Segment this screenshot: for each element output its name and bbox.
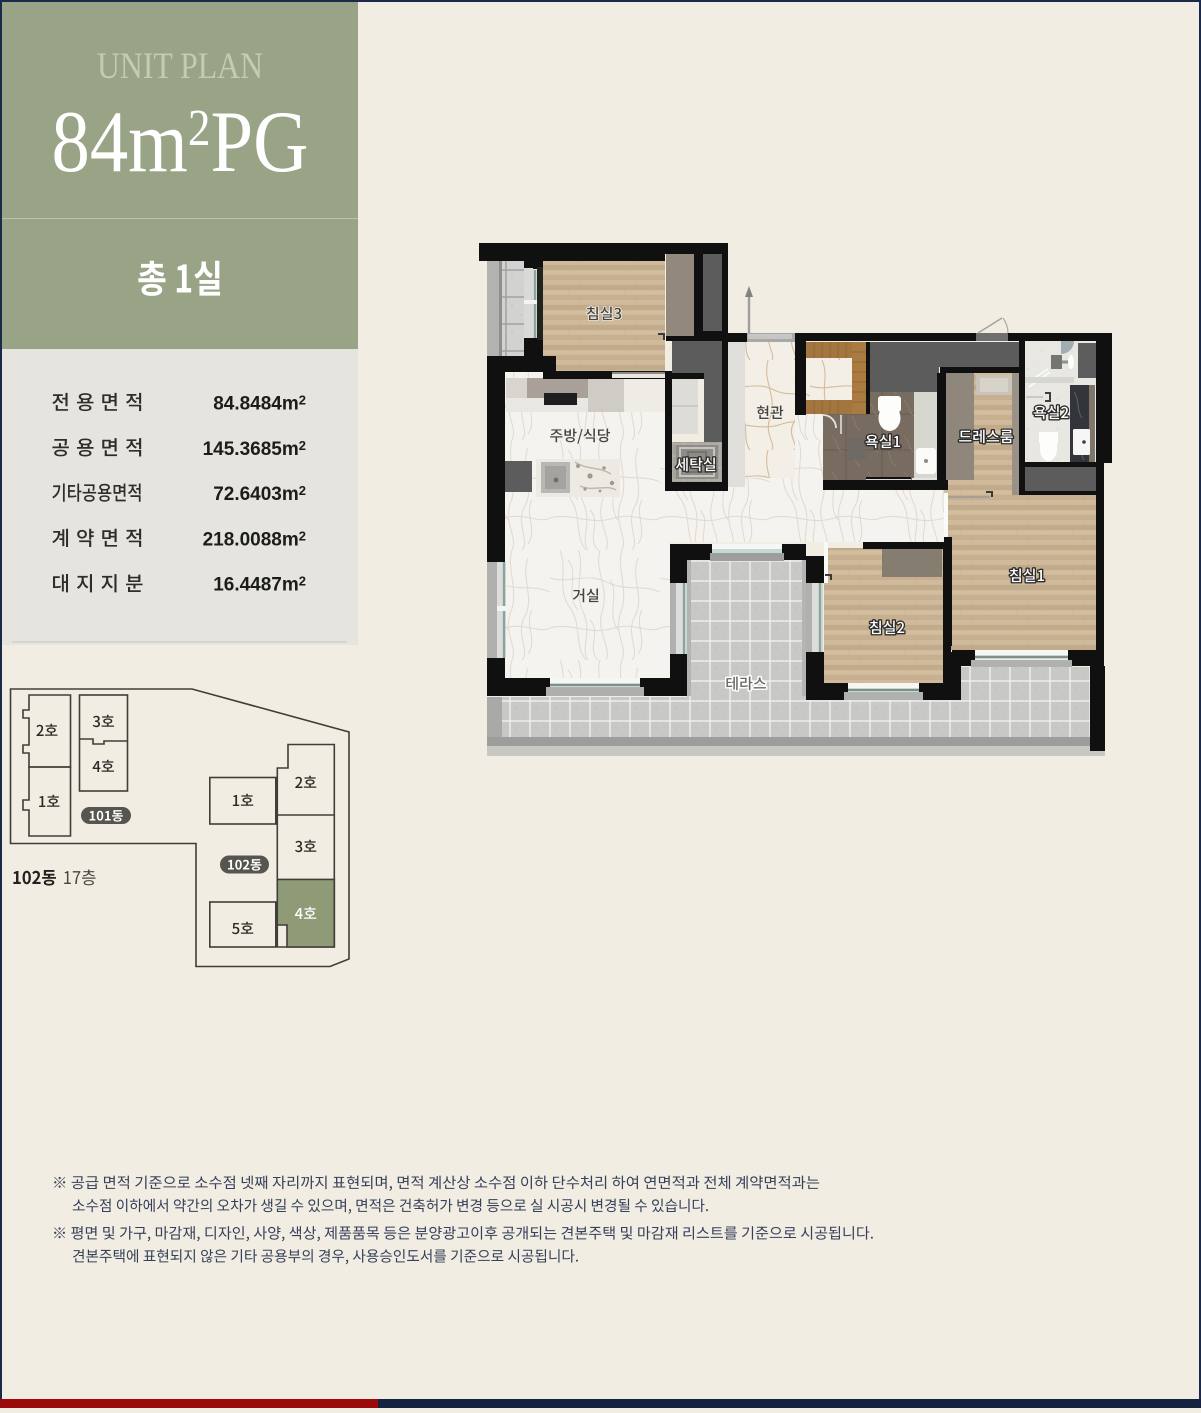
svg-text:84.8484m2: 84.8484m2	[213, 393, 306, 415]
svg-text:218.0088m2: 218.0088m2	[203, 528, 306, 550]
svg-text:UNIT PLAN: UNIT PLAN	[97, 46, 263, 87]
svg-text:16.4487m2: 16.4487m2	[213, 574, 306, 596]
svg-text:145.3685m2: 145.3685m2	[203, 438, 306, 460]
svg-text:84m2PG: 84m2PG	[52, 94, 309, 191]
svg-text:72.6403m2: 72.6403m2	[213, 483, 306, 505]
